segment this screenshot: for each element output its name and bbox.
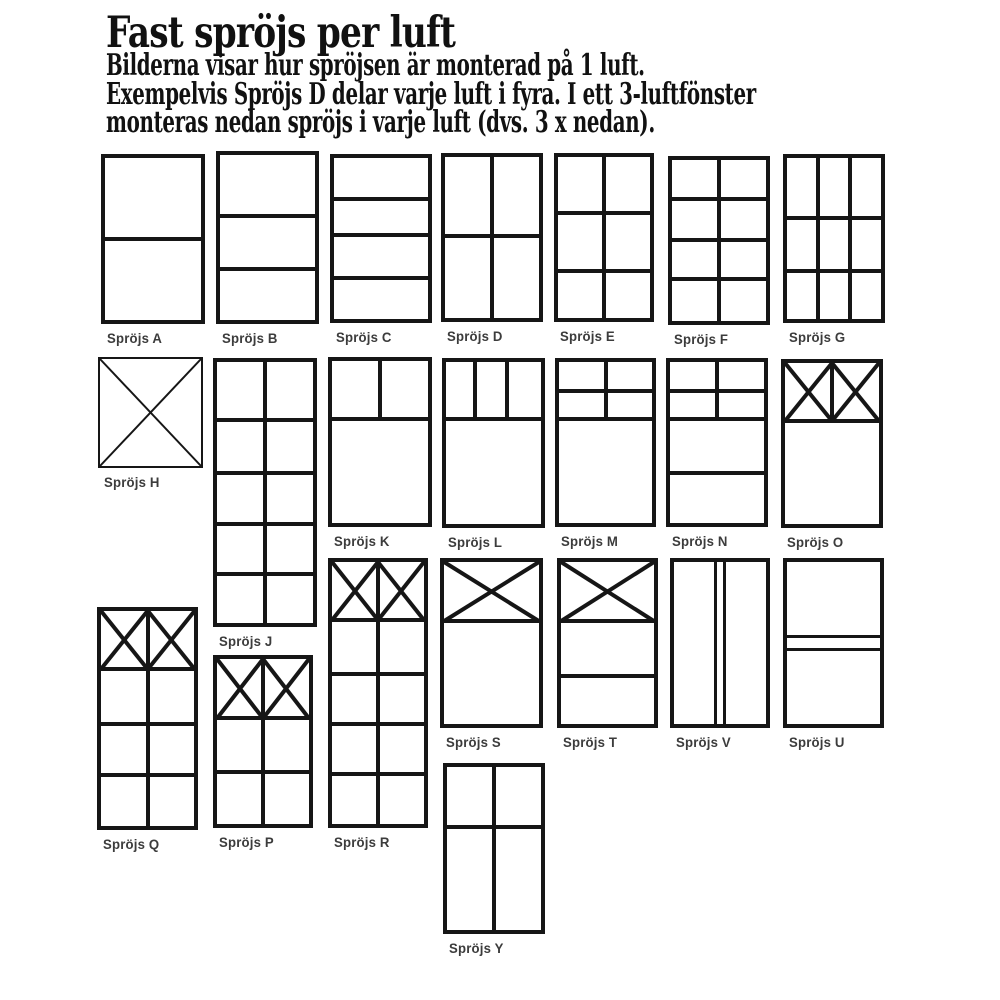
window-label-sprojs-j: Spröjs J (219, 633, 272, 649)
window-label-sprojs-a: Spröjs A (107, 330, 162, 346)
muntin-bar-horizontal (559, 417, 652, 421)
diagonal-cross-muntin (263, 659, 309, 718)
muntin-bar-horizontal (217, 572, 313, 576)
muntin-bar-horizontal (105, 237, 201, 241)
window-label-sprojs-k: Spröjs K (334, 533, 390, 549)
muntin-bar-horizontal (787, 216, 881, 220)
muntin-bar-horizontal (101, 722, 194, 726)
window-frame-sprojs-r (328, 558, 428, 828)
window-frame-sprojs-a (101, 154, 205, 324)
muntin-bar-horizontal (217, 770, 309, 774)
diagonal-cross-muntin (378, 562, 424, 620)
window-frame-sprojs-y (443, 763, 545, 934)
muntin-bar-horizontal (217, 418, 313, 422)
window-frame-sprojs-v (670, 558, 770, 728)
diagonal-cross-muntin (101, 611, 148, 669)
window-label-sprojs-n: Spröjs N (672, 533, 728, 549)
window-label-sprojs-r: Spröjs R (334, 834, 390, 850)
muntin-bar-vertical (723, 562, 726, 724)
muntin-bar-horizontal (558, 269, 650, 273)
diagonal-cross-muntin (832, 363, 879, 421)
window-label-sprojs-l: Spröjs L (448, 534, 502, 550)
muntin-bar-horizontal (447, 825, 541, 829)
muntin-bar-horizontal (220, 267, 315, 271)
page: Fast spröjs per luft Bilderna visar hur … (0, 0, 1000, 1000)
window-label-sprojs-h: Spröjs H (104, 474, 160, 490)
window-label-sprojs-u: Spröjs U (789, 734, 845, 750)
window-label-sprojs-m: Spröjs M (561, 533, 618, 549)
muntin-bar-horizontal (220, 214, 315, 218)
muntin-bar-horizontal (334, 276, 428, 280)
muntin-bar-horizontal (217, 471, 313, 475)
window-label-sprojs-y: Spröjs Y (449, 940, 504, 956)
muntin-bar-vertical (848, 158, 852, 319)
window-label-sprojs-d: Spröjs D (447, 328, 503, 344)
diagonal-cross-muntin (561, 562, 654, 621)
muntin-bar-vertical (378, 361, 382, 419)
diagonal-cross-muntin (217, 659, 263, 718)
window-label-sprojs-e: Spröjs E (560, 328, 615, 344)
muntin-bar-horizontal (559, 389, 652, 393)
muntin-bar-horizontal (670, 417, 764, 421)
window-frame-sprojs-s (440, 558, 543, 728)
muntin-bar-horizontal (446, 417, 541, 421)
muntin-bar-vertical (816, 158, 820, 319)
muntin-bar-horizontal (787, 635, 880, 638)
window-frame-sprojs-o (781, 359, 883, 528)
window-frame-sprojs-d (441, 153, 543, 322)
muntin-bar-horizontal (334, 233, 428, 237)
sprojs-pattern-diagram: Spröjs ASpröjs BSpröjs CSpröjs DSpröjs E… (0, 0, 1000, 1000)
window-label-sprojs-b: Spröjs B (222, 330, 278, 346)
diagonal-cross-muntin (444, 562, 539, 621)
muntin-bar-horizontal (334, 197, 428, 201)
window-label-sprojs-g: Spröjs G (789, 329, 845, 345)
muntin-bar-vertical (602, 157, 606, 318)
muntin-bar-horizontal (332, 772, 424, 776)
window-frame-sprojs-f (668, 156, 770, 325)
window-frame-sprojs-e (554, 153, 654, 322)
muntin-bar-horizontal (332, 722, 424, 726)
muntin-bar-vertical (714, 562, 717, 724)
muntin-bar-horizontal (332, 672, 424, 676)
muntin-bar-horizontal (670, 471, 764, 475)
window-frame-sprojs-p (213, 655, 313, 828)
window-label-sprojs-s: Spröjs S (446, 734, 501, 750)
window-frame-sprojs-n (666, 358, 768, 527)
diagonal-cross-muntin (332, 562, 378, 620)
muntin-bar-vertical (473, 362, 477, 419)
window-label-sprojs-q: Spröjs Q (103, 836, 159, 852)
diagonal-cross-muntin (100, 359, 201, 466)
window-label-sprojs-o: Spröjs O (787, 534, 843, 550)
muntin-bar-vertical (492, 767, 496, 930)
window-label-sprojs-f: Spröjs F (674, 331, 728, 347)
window-label-sprojs-p: Spröjs P (219, 834, 274, 850)
muntin-bar-horizontal (672, 277, 766, 281)
window-frame-sprojs-g (783, 154, 885, 323)
window-label-sprojs-c: Spröjs C (336, 329, 392, 345)
window-frame-sprojs-l (442, 358, 545, 528)
muntin-bar-horizontal (787, 648, 880, 651)
window-label-sprojs-t: Spröjs T (563, 734, 617, 750)
muntin-bar-vertical (263, 362, 267, 623)
window-frame-sprojs-k (328, 357, 432, 527)
window-frame-sprojs-q (97, 607, 198, 830)
muntin-bar-horizontal (787, 269, 881, 273)
window-label-sprojs-v: Spröjs V (676, 734, 731, 750)
muntin-bar-horizontal (672, 238, 766, 242)
muntin-bar-horizontal (101, 773, 194, 777)
window-frame-sprojs-b (216, 151, 319, 324)
muntin-bar-horizontal (217, 522, 313, 526)
diagonal-cross-muntin (148, 611, 195, 669)
muntin-bar-horizontal (672, 197, 766, 201)
muntin-bar-vertical (505, 362, 509, 419)
window-frame-sprojs-j (213, 358, 317, 627)
window-frame-sprojs-h (98, 357, 203, 468)
muntin-bar-horizontal (561, 674, 654, 678)
window-frame-sprojs-u (783, 558, 884, 728)
window-frame-sprojs-m (555, 358, 656, 527)
muntin-bar-horizontal (558, 211, 650, 215)
muntin-bar-horizontal (445, 234, 539, 238)
window-frame-sprojs-c (330, 154, 432, 323)
muntin-bar-horizontal (332, 417, 428, 421)
diagonal-cross-muntin (785, 363, 832, 421)
muntin-bar-horizontal (670, 389, 764, 393)
window-frame-sprojs-t (557, 558, 658, 728)
